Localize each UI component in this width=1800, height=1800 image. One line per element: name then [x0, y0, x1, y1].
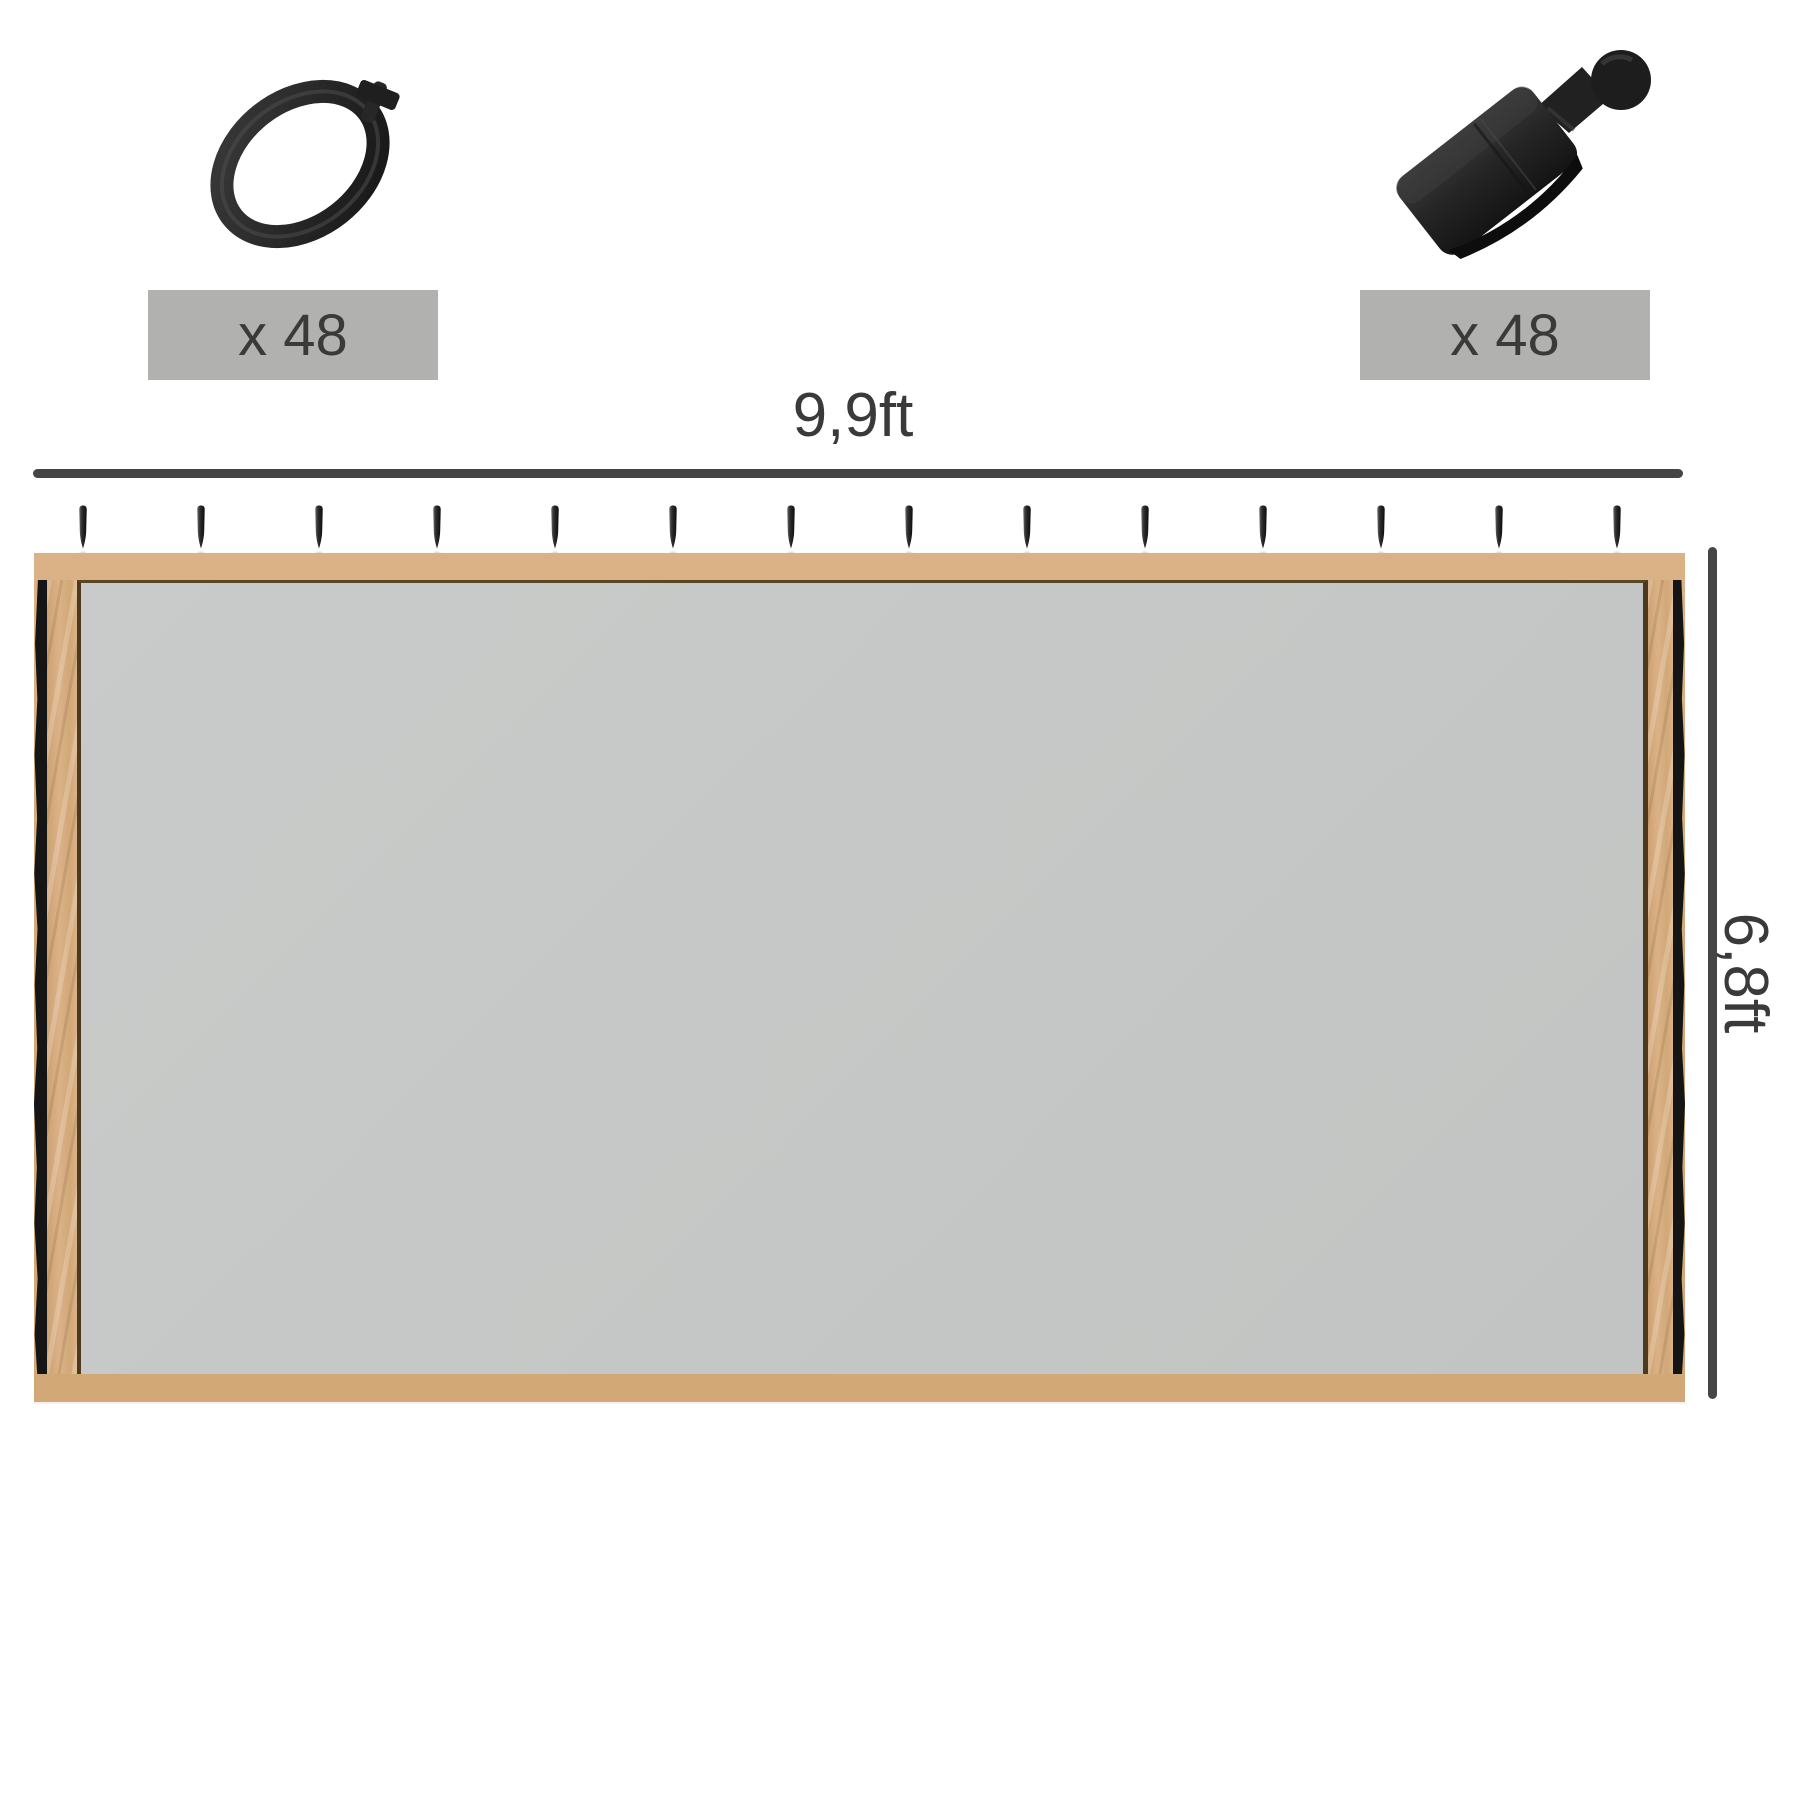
curtain-hook-icon: [667, 505, 679, 549]
curtain-hook-icon: [1257, 505, 1269, 549]
curtain-hook-icon: [431, 505, 443, 549]
clip-count-label: x 48: [1360, 290, 1650, 380]
curtain-hook-icon: [1375, 505, 1387, 549]
ball-clip-icon: [1388, 38, 1668, 268]
curtain-hook-icon: [549, 505, 561, 549]
curtain-hook-icon: [77, 505, 89, 549]
panel-fabric: [77, 580, 1648, 1374]
clip-count-text: x 48: [1450, 302, 1560, 369]
curtain-hook-icon: [313, 505, 325, 549]
width-dimension-label: 9,9ft: [733, 383, 973, 447]
curtain-hook-icon: [195, 505, 207, 549]
panel-left-black-edge: [34, 580, 47, 1374]
curtain-hook-icon: [903, 505, 915, 549]
curtain-panel: [34, 553, 1685, 1402]
curtain-hook-icon: [785, 505, 797, 549]
panel-right-trim: [1648, 580, 1673, 1374]
curtain-ring-icon: [192, 52, 412, 267]
curtain-hook-icon: [1139, 505, 1151, 549]
curtain-hook-icon: [1493, 505, 1505, 549]
ring-count-text: x 48: [238, 302, 348, 369]
panel-right-black-edge: [1673, 580, 1685, 1374]
curtain-hook-icon: [1021, 505, 1033, 549]
height-dimension-label: 6,8ft: [1714, 853, 1778, 1093]
product-dimension-diagram: x 48 x 48 9,9ft 6,8ft: [0, 0, 1800, 1800]
curtain-hook-icon: [1611, 505, 1623, 549]
ring-count-label: x 48: [148, 290, 438, 380]
panel-left-trim: [47, 580, 77, 1374]
width-dimension-line: [33, 469, 1683, 478]
